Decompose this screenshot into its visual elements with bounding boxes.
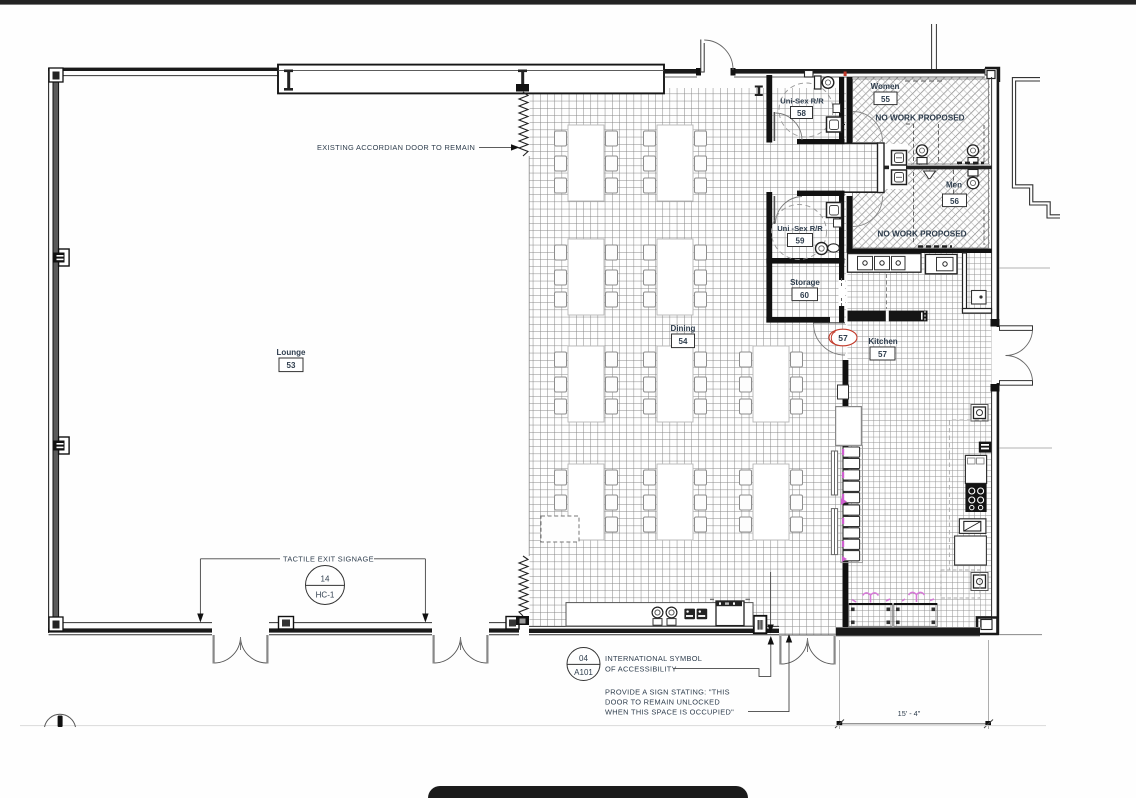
svg-text:57: 57 <box>838 333 848 343</box>
svg-text:58: 58 <box>797 109 806 118</box>
svg-text:NO WORK PROPOSED: NO WORK PROPOSED <box>875 114 964 123</box>
svg-text:55: 55 <box>881 95 890 104</box>
svg-text:DOOR TO REMAIN UNLOCKED: DOOR TO REMAIN UNLOCKED <box>605 698 720 707</box>
svg-text:EXISTING ACCORDIAN DOOR TO REM: EXISTING ACCORDIAN DOOR TO REMAIN <box>317 143 475 152</box>
svg-text:60: 60 <box>800 291 809 300</box>
svg-text:NO WORK PROPOSED: NO WORK PROPOSED <box>877 230 966 239</box>
svg-text:59: 59 <box>796 237 805 246</box>
svg-text:Dining: Dining <box>671 324 696 333</box>
svg-text:Women: Women <box>871 82 900 91</box>
svg-text:Men: Men <box>946 181 962 190</box>
svg-text:A101: A101 <box>574 668 593 677</box>
svg-text:Lounge: Lounge <box>277 348 306 357</box>
svg-text:15' - 4": 15' - 4" <box>898 709 921 718</box>
svg-text:Uni-Sex R/R: Uni-Sex R/R <box>780 97 824 106</box>
svg-text:Kitchen: Kitchen <box>868 337 897 346</box>
svg-text:56: 56 <box>950 197 959 206</box>
svg-text:WHEN THIS SPACE IS OCCUPIED": WHEN THIS SPACE IS OCCUPIED" <box>605 708 734 717</box>
svg-text:Uni -Sex R/R: Uni -Sex R/R <box>777 224 823 233</box>
svg-text:57: 57 <box>878 350 887 359</box>
svg-text:OF ACCESSIBILITY: OF ACCESSIBILITY <box>605 665 677 674</box>
svg-text:54: 54 <box>679 337 688 346</box>
svg-text:INTERNATIONAL SYMBOL: INTERNATIONAL SYMBOL <box>605 654 702 663</box>
svg-text:14: 14 <box>321 575 330 584</box>
svg-text:TACTILE EXIT SIGNAGE: TACTILE EXIT SIGNAGE <box>283 555 374 564</box>
svg-text:53: 53 <box>287 361 296 370</box>
svg-text:PROVIDE A SIGN STATING: "THIS: PROVIDE A SIGN STATING: "THIS <box>605 688 730 697</box>
svg-text:Storage: Storage <box>790 278 820 287</box>
svg-text:04: 04 <box>579 654 588 663</box>
svg-text:HC-1: HC-1 <box>316 591 335 600</box>
